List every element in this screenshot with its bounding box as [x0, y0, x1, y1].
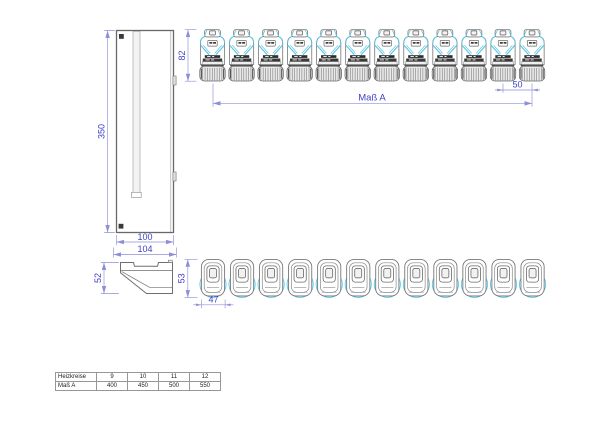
table-cell: 11 [159, 373, 190, 382]
table-cell: 9 [97, 373, 128, 382]
actuator-unit [229, 30, 254, 81]
actuator-unit [432, 30, 457, 81]
dim-label-53: 53 [177, 273, 187, 283]
actuator-unit [490, 259, 516, 297]
dim-label-50: 50 [512, 79, 522, 89]
size-table: Heizkreise 9 10 11 12 Maß A 400 450 500 … [55, 372, 221, 391]
dim-label-47: 47 [208, 294, 218, 304]
actuator-front-row [200, 30, 545, 81]
actuator-unit [461, 259, 487, 297]
dim-cabinet-width-outer: 104 [114, 244, 177, 257]
dim-label-100: 100 [137, 232, 152, 242]
hinge-tab-upper [173, 76, 176, 85]
screw-top [119, 34, 124, 39]
actuator-unit [490, 30, 515, 81]
actuator-unit [258, 30, 283, 81]
dim-mass-a: Maß A [213, 84, 532, 107]
actuator-unit [403, 30, 428, 81]
actuator-unit [519, 30, 544, 81]
table-cell: 12 [190, 373, 221, 382]
dim-actuator-pitch: 50 [495, 79, 540, 106]
dim-actuator-height: 82 [177, 30, 197, 81]
table-row-label: Maß A [56, 382, 97, 391]
dim-label-104: 104 [137, 244, 152, 254]
table-cell: 10 [128, 373, 159, 382]
actuator-unit [316, 30, 341, 81]
actuator-unit [200, 30, 225, 81]
table-row: Maß A 400 450 500 550 [56, 382, 221, 391]
cabinet-top-profile [121, 260, 173, 293]
actuator-unit [345, 30, 370, 81]
dim-label-350: 350 [96, 124, 106, 139]
table-row: Heizkreise 9 10 11 12 [56, 373, 221, 382]
actuator-unit [316, 259, 342, 297]
dim-knob-width: 47 [193, 294, 234, 308]
actuator-unit [345, 259, 371, 297]
dim-knob-height: 53 [177, 259, 198, 297]
actuator-unit [287, 30, 312, 81]
dim-profile-height: 52 [93, 263, 119, 294]
actuator-unit [519, 259, 545, 297]
table-cell: 500 [159, 382, 190, 391]
actuator-unit [374, 259, 400, 297]
table-cell: 400 [97, 382, 128, 391]
dim-label-mass-a: Maß A [358, 92, 386, 103]
actuator-unit [403, 259, 429, 297]
technical-drawing: 350 100 104 52 82 50 Maß A [0, 0, 600, 424]
actuator-unit [258, 259, 284, 297]
door-groove [133, 31, 140, 192]
hinge-tab-lower [173, 172, 176, 181]
actuator-unit [432, 259, 458, 297]
table-row-label: Heizkreise [56, 373, 97, 382]
dim-cabinet-height: 350 [96, 31, 115, 233]
table-cell: 550 [190, 382, 221, 391]
actuator-unit [461, 30, 486, 81]
actuator-unit [374, 30, 399, 81]
actuator-unit [229, 259, 255, 297]
actuator-top-row [200, 259, 546, 297]
dim-label-82: 82 [177, 50, 187, 60]
cabinet-side-view [117, 31, 177, 233]
dim-label-52: 52 [93, 273, 103, 283]
actuator-unit [287, 259, 313, 297]
actuator-unit [200, 259, 226, 297]
screw-bottom [119, 224, 124, 229]
drawing-canvas: 350 100 104 52 82 50 Maß A [0, 0, 600, 424]
table-cell: 450 [128, 382, 159, 391]
